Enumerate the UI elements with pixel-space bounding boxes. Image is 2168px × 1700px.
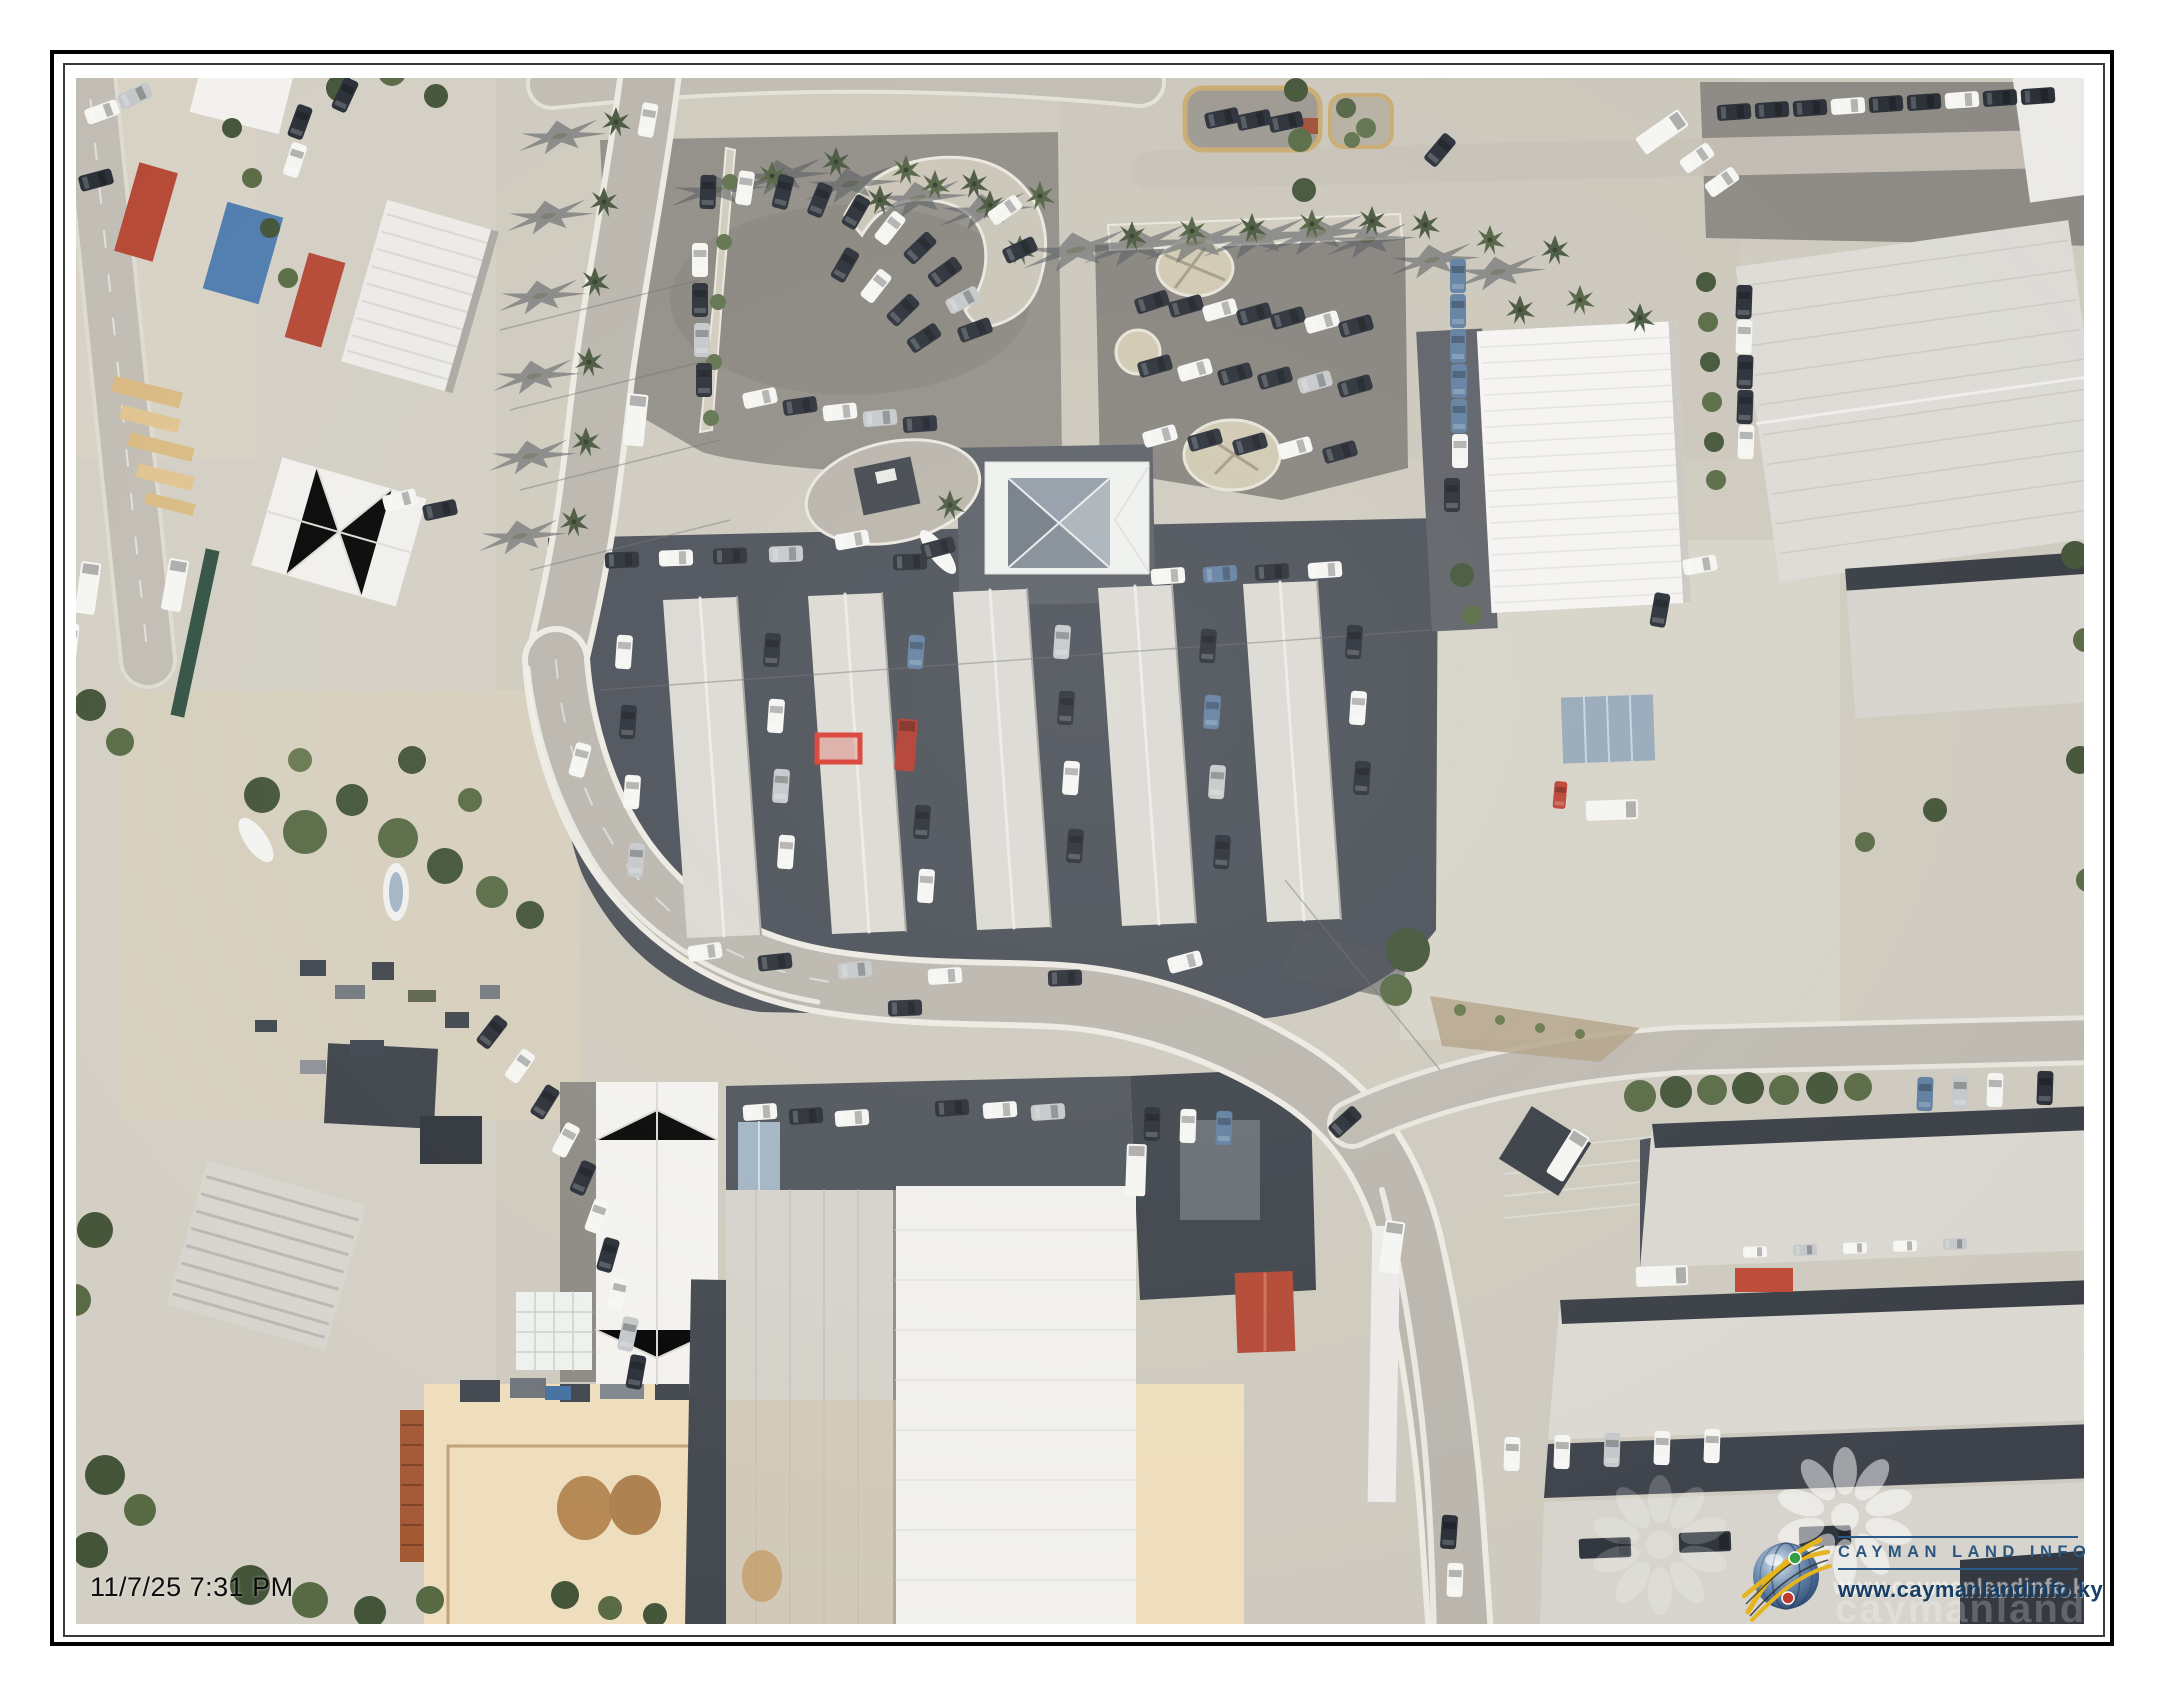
cayman-land-info-logo: CAYMAN LAND INFO www.caymanlandinfo.ky [1742,1498,2087,1633]
globe-icon [1742,1518,1834,1628]
logo-url: www.caymanlandinfo.ky [1838,1577,2078,1603]
logo-rule-bottom [1838,1568,2078,1570]
aerial-photo: caymanlandinfo [76,78,2084,1624]
aerial-map: caymanlandinfo [76,78,2084,1624]
print-page: caymanlandinfo 11/7/25 7:31 PM [0,0,2168,1700]
print-timestamp: 11/7/25 7:31 PM [90,1572,294,1603]
logo-title: CAYMAN LAND INFO [1838,1538,2078,1568]
